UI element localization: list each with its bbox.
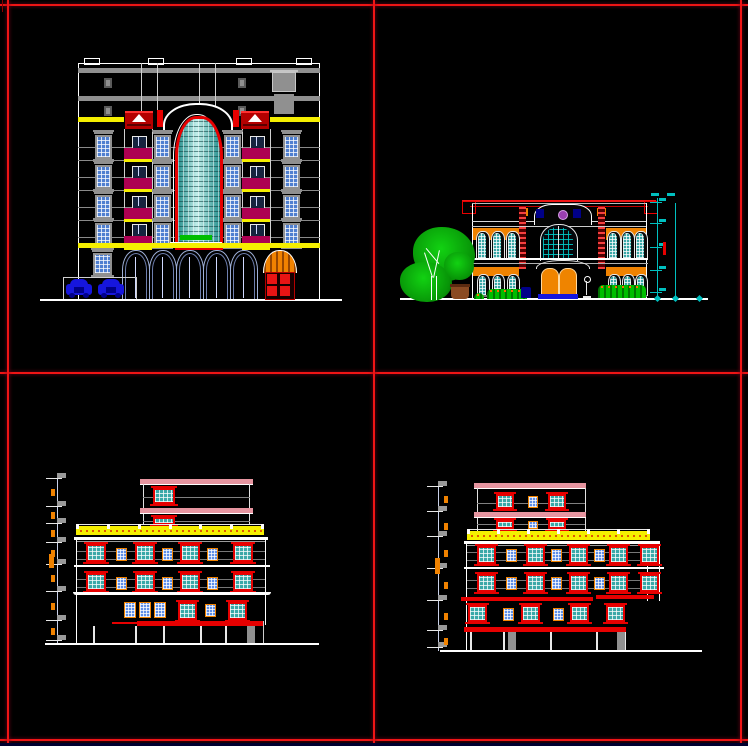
parapet-ornament xyxy=(489,535,491,537)
window-glass xyxy=(595,578,604,589)
window-glass xyxy=(498,496,512,507)
dim-label xyxy=(435,558,440,574)
parapet-ornament xyxy=(531,535,533,537)
elevation-tick xyxy=(427,511,443,512)
window-sill xyxy=(474,564,499,566)
parapet-ornament xyxy=(507,535,509,537)
column xyxy=(503,632,505,650)
window-sill xyxy=(465,622,490,624)
parapet-ornament xyxy=(543,535,545,537)
parapet-ornament xyxy=(549,535,551,537)
penthouse-edge xyxy=(585,488,586,531)
window-glass xyxy=(552,550,561,561)
window-glass xyxy=(507,578,516,589)
window-glass xyxy=(550,496,564,507)
elevation-tick xyxy=(427,630,443,631)
window-sill xyxy=(493,509,517,511)
window-sill xyxy=(545,509,569,511)
window-glass xyxy=(529,522,537,528)
column xyxy=(508,632,516,650)
parapet-ornament xyxy=(615,535,617,537)
window-sill xyxy=(474,592,499,594)
parapet-ornament xyxy=(579,535,581,537)
window-sill xyxy=(566,564,591,566)
parapet-ornament xyxy=(567,535,569,537)
parapet-post xyxy=(497,529,500,534)
window-glass xyxy=(470,607,485,620)
parapet-ornament xyxy=(525,535,527,537)
column xyxy=(617,632,625,650)
dim-text-mark xyxy=(444,550,448,557)
slab xyxy=(596,595,654,599)
elevation-flag xyxy=(438,481,447,486)
floor-band xyxy=(464,567,664,569)
window-glass xyxy=(528,548,543,562)
parapet-ornament xyxy=(591,535,593,537)
dim-text-mark xyxy=(444,496,448,503)
window-glass xyxy=(642,576,657,590)
window-glass xyxy=(572,607,587,620)
roof-slab xyxy=(474,483,586,488)
parapet-ornament xyxy=(645,535,647,537)
window-sill xyxy=(523,564,548,566)
parapet-post xyxy=(467,529,470,534)
window-glass xyxy=(552,578,561,589)
parapet-ornament xyxy=(477,535,479,537)
parapet-ornament xyxy=(471,535,473,537)
dim-text-mark xyxy=(444,638,448,645)
slab xyxy=(461,597,593,601)
parapet-ornament xyxy=(585,535,587,537)
window-glass xyxy=(504,609,513,620)
window-glass xyxy=(529,497,537,507)
window-sill xyxy=(567,622,592,624)
elevation-tick xyxy=(427,600,443,601)
ground-line xyxy=(440,650,702,652)
window-glass xyxy=(479,548,494,562)
window-sill xyxy=(606,564,631,566)
window-glass xyxy=(479,576,494,590)
window-glass xyxy=(595,550,604,561)
dim-text-mark xyxy=(444,582,448,589)
window-glass xyxy=(642,548,657,562)
parapet-ornament xyxy=(495,535,497,537)
parapet-post xyxy=(587,529,590,534)
window-sill xyxy=(606,592,631,594)
parapet-post xyxy=(527,529,530,534)
window-sill xyxy=(523,592,548,594)
window-glass xyxy=(611,576,626,590)
window-glass xyxy=(611,548,626,562)
elevation-tick xyxy=(427,486,443,487)
parapet-ornament xyxy=(639,535,641,537)
dim-text-mark xyxy=(444,523,448,530)
window-glass xyxy=(523,607,538,620)
parapet-ornament xyxy=(519,535,521,537)
parapet-ornament xyxy=(597,535,599,537)
slab xyxy=(464,627,626,632)
window-sill xyxy=(518,622,543,624)
parapet-post xyxy=(647,529,650,534)
roof-slab xyxy=(474,512,586,517)
parapet-ornament xyxy=(555,535,557,537)
viewport-side-elevation-b[interactable] xyxy=(0,0,748,746)
parapet-ornament xyxy=(609,535,611,537)
parapet-ornament xyxy=(621,535,623,537)
window-glass xyxy=(550,522,564,527)
parapet-ornament xyxy=(483,535,485,537)
parapet-ornament xyxy=(501,535,503,537)
parapet-ornament xyxy=(627,535,629,537)
parapet-ornament xyxy=(537,535,539,537)
elevation-flag xyxy=(438,531,447,536)
parapet-post xyxy=(617,529,620,534)
window-glass xyxy=(608,607,623,620)
column xyxy=(596,632,598,650)
elevation-flag xyxy=(438,595,447,600)
parapet-post xyxy=(557,529,560,534)
window-sill xyxy=(566,592,591,594)
dim-text-mark xyxy=(444,613,448,620)
elevation-tick xyxy=(427,536,443,537)
column xyxy=(470,632,472,650)
parapet-ornament xyxy=(561,535,563,537)
window-glass xyxy=(571,548,586,562)
window-glass xyxy=(507,550,516,561)
elevation-tick xyxy=(427,647,443,648)
window-glass xyxy=(554,609,563,620)
parapet-ornament xyxy=(603,535,605,537)
cad-sheet[interactable] xyxy=(0,0,748,746)
window-glass xyxy=(528,576,543,590)
elevation-flag xyxy=(438,506,447,511)
elevation-flag xyxy=(438,625,447,630)
window-sill xyxy=(637,592,662,594)
window-sill xyxy=(637,564,662,566)
column xyxy=(550,632,552,650)
parapet-ornament xyxy=(633,535,635,537)
parapet-ornament xyxy=(513,535,515,537)
window-glass xyxy=(498,522,512,527)
parapet-ornament xyxy=(573,535,575,537)
window-glass xyxy=(571,576,586,590)
window-sill xyxy=(603,622,628,624)
